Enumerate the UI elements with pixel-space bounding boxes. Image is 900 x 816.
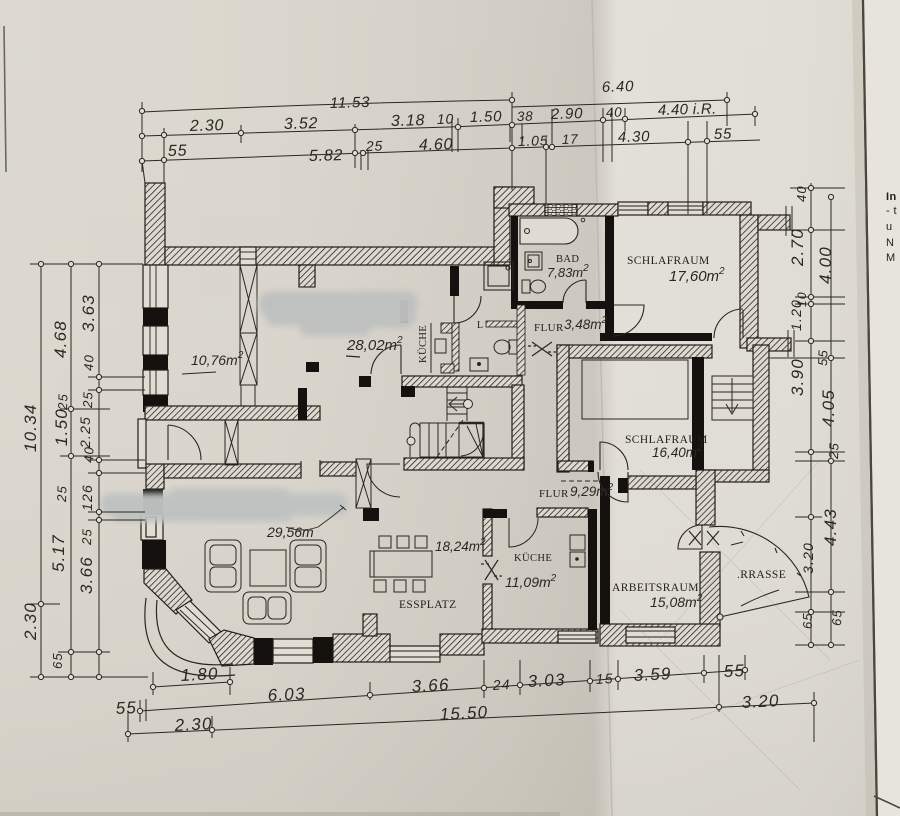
svg-text:ESSPLATZ: ESSPLATZ bbox=[399, 599, 457, 611]
svg-text:11,09m2: 11,09m2 bbox=[505, 573, 557, 590]
svg-text:28,02m2: 28,02m2 bbox=[346, 335, 403, 354]
svg-text:u: u bbox=[886, 221, 893, 233]
svg-text:55: 55 bbox=[714, 126, 733, 143]
svg-text:N: N bbox=[886, 237, 894, 249]
svg-text:25: 25 bbox=[54, 485, 70, 503]
svg-text:3.03: 3.03 bbox=[527, 670, 566, 691]
svg-text:25: 25 bbox=[80, 391, 96, 409]
svg-text:4.30: 4.30 bbox=[618, 128, 651, 146]
svg-text:55: 55 bbox=[815, 349, 831, 366]
svg-text:3.59: 3.59 bbox=[633, 664, 672, 685]
svg-text:10.34: 10.34 bbox=[21, 403, 40, 452]
svg-text:4.40 i.R.: 4.40 i.R. bbox=[658, 100, 717, 119]
svg-text:M: M bbox=[886, 252, 896, 264]
svg-text:2.90: 2.90 bbox=[550, 105, 584, 123]
svg-text:3.20: 3.20 bbox=[741, 691, 780, 712]
svg-text:3.66: 3.66 bbox=[411, 675, 450, 696]
svg-text:18,24m2: 18,24m2 bbox=[435, 537, 486, 554]
svg-text:9,29m2: 9,29m2 bbox=[570, 482, 614, 499]
svg-text:1.50: 1.50 bbox=[52, 408, 71, 446]
svg-text:15.50: 15.50 bbox=[439, 702, 488, 724]
svg-text:17,60m2: 17,60m2 bbox=[669, 266, 725, 285]
svg-text:SCHLAFRAUM: SCHLAFRAUM bbox=[627, 255, 710, 267]
svg-text:3.90: 3.90 bbox=[788, 358, 807, 396]
svg-text:BAD: BAD bbox=[556, 254, 579, 265]
svg-text:1.80: 1.80 bbox=[180, 664, 219, 685]
svg-text:40: 40 bbox=[81, 446, 97, 463]
svg-text:38: 38 bbox=[517, 109, 534, 124]
svg-text:17: 17 bbox=[562, 132, 579, 147]
svg-text:2.30: 2.30 bbox=[189, 117, 225, 135]
svg-text:65: 65 bbox=[829, 609, 845, 626]
svg-text:2.25: 2.25 bbox=[77, 416, 93, 449]
svg-text:10: 10 bbox=[437, 111, 455, 127]
svg-text:KÜCHE: KÜCHE bbox=[514, 552, 552, 564]
svg-text:55: 55 bbox=[168, 142, 188, 160]
svg-text:10,76m2: 10,76m2 bbox=[191, 350, 244, 368]
svg-text:3,48m2: 3,48m2 bbox=[564, 315, 608, 332]
svg-text:4.68: 4.68 bbox=[51, 320, 70, 358]
svg-text:5.17: 5.17 bbox=[49, 534, 68, 572]
svg-text:6.03: 6.03 bbox=[267, 684, 306, 705]
svg-text:55: 55 bbox=[115, 698, 137, 718]
svg-text:3.18: 3.18 bbox=[391, 112, 426, 130]
svg-text:15,08m2: 15,08m2 bbox=[650, 593, 703, 610]
svg-text:11.53: 11.53 bbox=[330, 94, 371, 112]
svg-text:1.50: 1.50 bbox=[470, 108, 503, 126]
svg-text:3.20: 3.20 bbox=[800, 542, 816, 574]
svg-text:25: 25 bbox=[365, 138, 384, 154]
svg-text:FLUR: FLUR bbox=[539, 488, 569, 500]
svg-text:15: 15 bbox=[595, 670, 614, 687]
svg-text:ARBEITSRAUM: ARBEITSRAUM bbox=[612, 582, 699, 594]
svg-text:126: 126 bbox=[79, 484, 95, 511]
svg-text:7,83m2: 7,83m2 bbox=[547, 263, 589, 280]
svg-text:FLUR: FLUR bbox=[534, 322, 564, 334]
svg-text:2.70: 2.70 bbox=[788, 228, 807, 267]
svg-text:40: 40 bbox=[606, 105, 623, 120]
svg-text:KÜCHE: KÜCHE bbox=[417, 325, 429, 363]
svg-text:40: 40 bbox=[81, 354, 97, 371]
svg-text:3.63: 3.63 bbox=[79, 294, 98, 332]
svg-text:1.20: 1.20 bbox=[788, 299, 804, 331]
svg-text:4.43: 4.43 bbox=[821, 508, 840, 546]
svg-text:65: 65 bbox=[800, 612, 815, 629]
svg-text:2.30: 2.30 bbox=[173, 714, 213, 735]
svg-text:4.60: 4.60 bbox=[419, 136, 454, 154]
svg-text:25: 25 bbox=[55, 393, 71, 411]
svg-text:5.82: 5.82 bbox=[309, 147, 344, 165]
svg-text:2.30: 2.30 bbox=[21, 602, 40, 641]
svg-text:3.66: 3.66 bbox=[77, 556, 96, 594]
svg-text:3.52: 3.52 bbox=[284, 115, 319, 133]
svg-text:40: 40 bbox=[794, 185, 809, 202]
svg-text:4.00: 4.00 bbox=[816, 246, 835, 284]
svg-text:1.05: 1.05 bbox=[518, 132, 549, 149]
svg-text:L: L bbox=[477, 320, 484, 331]
svg-text:.RRASSE: .RRASSE bbox=[737, 569, 786, 581]
svg-text:24: 24 bbox=[491, 676, 511, 693]
svg-text:55: 55 bbox=[723, 661, 745, 681]
svg-text:6.40: 6.40 bbox=[602, 78, 635, 96]
svg-text:In: In bbox=[886, 191, 897, 203]
svg-text:- t: - t bbox=[886, 205, 897, 217]
svg-text:29,56m: 29,56m bbox=[266, 524, 314, 540]
svg-text:65: 65 bbox=[50, 652, 65, 669]
svg-text:16,40m2: 16,40m2 bbox=[652, 443, 703, 460]
svg-text:25: 25 bbox=[79, 528, 95, 546]
svg-text:4.05: 4.05 bbox=[819, 389, 838, 427]
svg-text:25: 25 bbox=[826, 442, 842, 460]
